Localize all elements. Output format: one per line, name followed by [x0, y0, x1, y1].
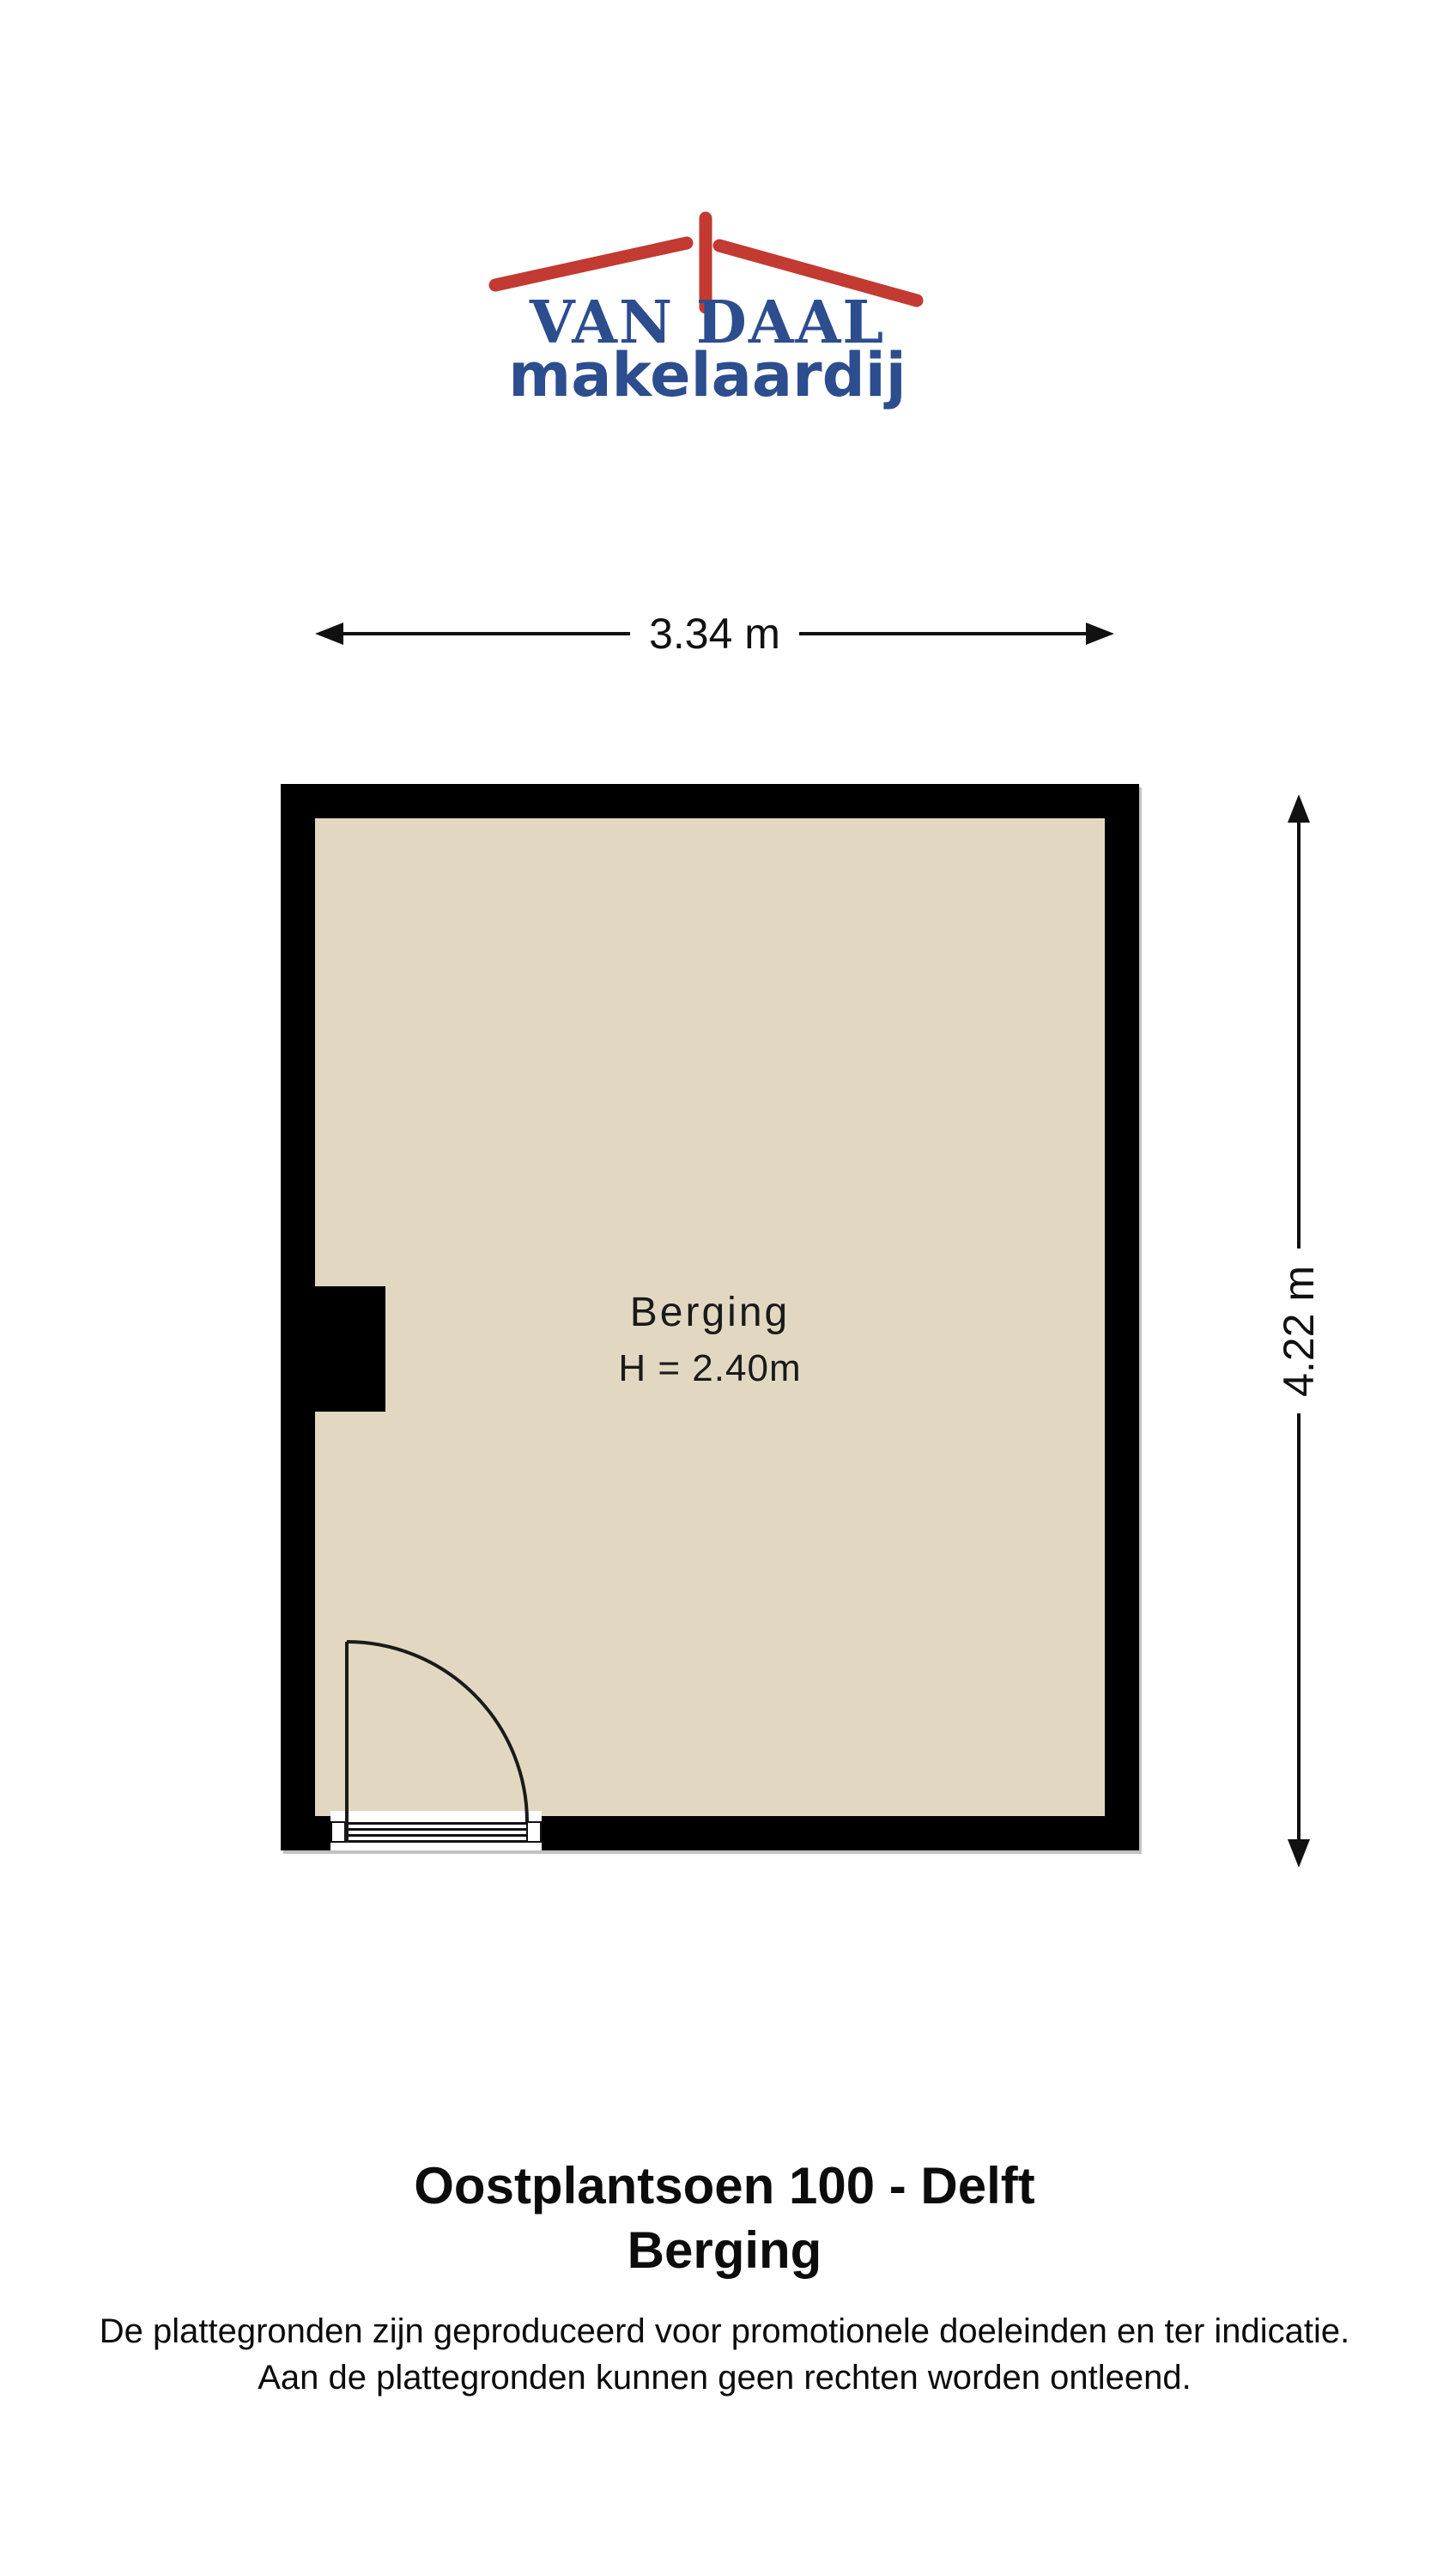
footer-title-block: Oostplantsoen 100 - Delft Berging — [0, 2154, 1449, 2282]
width-dimension: 3.34 m — [315, 615, 1114, 653]
height-dimension: 4.22 m — [1278, 794, 1319, 1868]
footer-title: Oostplantsoen 100 - Delft — [0, 2154, 1449, 2218]
disclaimer-line-1: De plattegronden zijn geproduceerd voor … — [0, 2308, 1449, 2354]
room-label-block: Berging H = 2.40m — [281, 1292, 1139, 1388]
down-arrowhead-icon — [1288, 1839, 1310, 1868]
dimension-line — [799, 632, 1086, 635]
room-ceiling-height-label: H = 2.40m — [281, 1350, 1139, 1388]
right-arrowhead-icon — [1086, 623, 1114, 645]
width-dimension-label: 3.34 m — [630, 612, 799, 655]
floor-plan-page: VAN DAAL makelaardij 3.34 m Berging H = … — [0, 0, 1449, 2576]
room-name-label: Berging — [281, 1292, 1139, 1334]
disclaimer-block: De plattegronden zijn geproduceerd voor … — [0, 2308, 1449, 2401]
logo-subtitle: makelaardij — [450, 345, 965, 405]
height-dimension-label: 4.22 m — [1277, 1249, 1320, 1414]
dimension-line — [1297, 1413, 1300, 1839]
disclaimer-line-2: Aan de plattegronden kunnen geen rechten… — [0, 2354, 1449, 2401]
footer-subtitle: Berging — [0, 2218, 1449, 2282]
floor-plan: Berging H = 2.40m — [281, 784, 1139, 1850]
left-arrowhead-icon — [315, 623, 343, 645]
up-arrowhead-icon — [1288, 794, 1310, 823]
dimension-line — [343, 632, 630, 635]
dimension-line — [1297, 823, 1300, 1249]
